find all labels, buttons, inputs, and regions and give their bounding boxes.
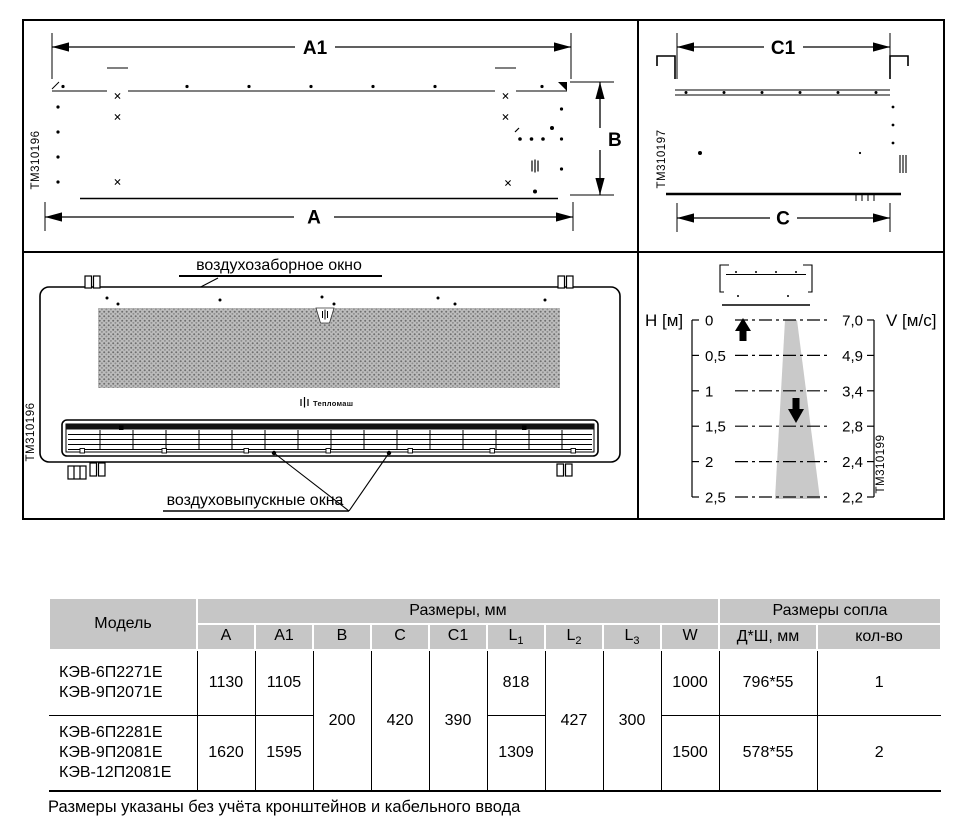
value-nozzle-count: 1 [817, 650, 941, 716]
col-header-a: A [197, 624, 255, 650]
footnote: Размеры указаны без учёта кронштейнов и … [48, 798, 520, 817]
value-a: 1130 [197, 650, 255, 716]
drawing-frame [22, 19, 945, 520]
col-header-l2: L2 [545, 624, 603, 650]
dimensions-table: Модель Размеры, мм Размеры сопла A A1 B … [48, 597, 942, 792]
table-row: КЭВ-6П2271Е КЭВ-9П2071Е 1130 1105 200 42… [49, 650, 941, 716]
col-header-nozzle-count: кол-во [817, 624, 941, 650]
model-cell: КЭВ-6П2281Е КЭВ-9П2081Е КЭВ-12П2081Е [49, 716, 197, 792]
value-w: 1000 [661, 650, 719, 716]
table-row: КЭВ-6П2281Е КЭВ-9П2081Е КЭВ-12П2081Е 162… [49, 716, 941, 792]
value-c: 420 [371, 650, 429, 791]
col-header-model: Модель [49, 598, 197, 650]
value-nozzle-size: 796*55 [719, 650, 817, 716]
frame-vertical-divider [637, 19, 639, 520]
datasheet-page: A1 [0, 0, 961, 834]
col-header-l1: L1 [487, 624, 545, 650]
value-a1: 1105 [255, 650, 313, 716]
col-header-nozzle-size: Д*Ш, мм [719, 624, 817, 650]
value-l1: 818 [487, 650, 545, 716]
col-group-nozzle: Размеры сопла [719, 598, 941, 624]
value-a1: 1595 [255, 716, 313, 792]
col-header-l3: L3 [603, 624, 661, 650]
value-nozzle-count: 2 [817, 716, 941, 792]
value-c1: 390 [429, 650, 487, 791]
col-header-c1: C1 [429, 624, 487, 650]
value-nozzle-size: 578*55 [719, 716, 817, 792]
value-l2: 427 [545, 650, 603, 791]
value-b: 200 [313, 650, 371, 791]
col-header-w: W [661, 624, 719, 650]
value-l1: 1309 [487, 716, 545, 792]
value-w: 1500 [661, 716, 719, 792]
col-header-c: C [371, 624, 429, 650]
frame-horizontal-divider [22, 251, 945, 253]
value-l3: 300 [603, 650, 661, 791]
model-cell: КЭВ-6П2271Е КЭВ-9П2071Е [49, 650, 197, 716]
value-a: 1620 [197, 716, 255, 792]
col-header-b: B [313, 624, 371, 650]
col-header-a1: A1 [255, 624, 313, 650]
col-group-dimensions: Размеры, мм [197, 598, 719, 624]
